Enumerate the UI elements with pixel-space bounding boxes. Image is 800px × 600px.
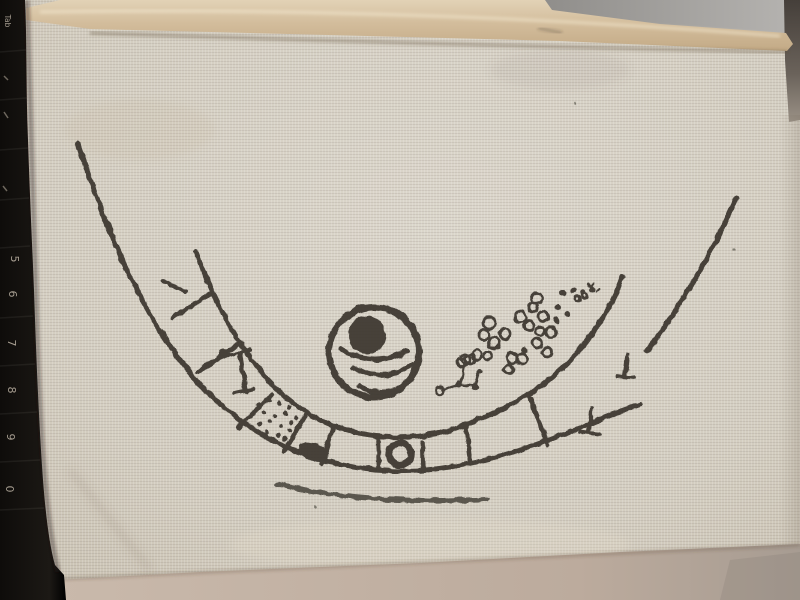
key-label-5: 5 <box>8 256 21 263</box>
photo-svg: Tab 5 6 7 8 9 0 <box>0 0 800 600</box>
nucleolus-dot <box>348 316 386 354</box>
key-label-6: 6 <box>6 291 19 298</box>
key-label-7: 7 <box>5 340 18 347</box>
key-label-0: 0 <box>3 486 16 493</box>
key-label-tab: Tab <box>3 14 12 28</box>
key-label-9: 9 <box>4 434 17 441</box>
key-label-8: 8 <box>5 387 18 394</box>
photo-canvas: Tab 5 6 7 8 9 0 <box>0 0 800 600</box>
right-edge-shadow <box>780 115 800 545</box>
